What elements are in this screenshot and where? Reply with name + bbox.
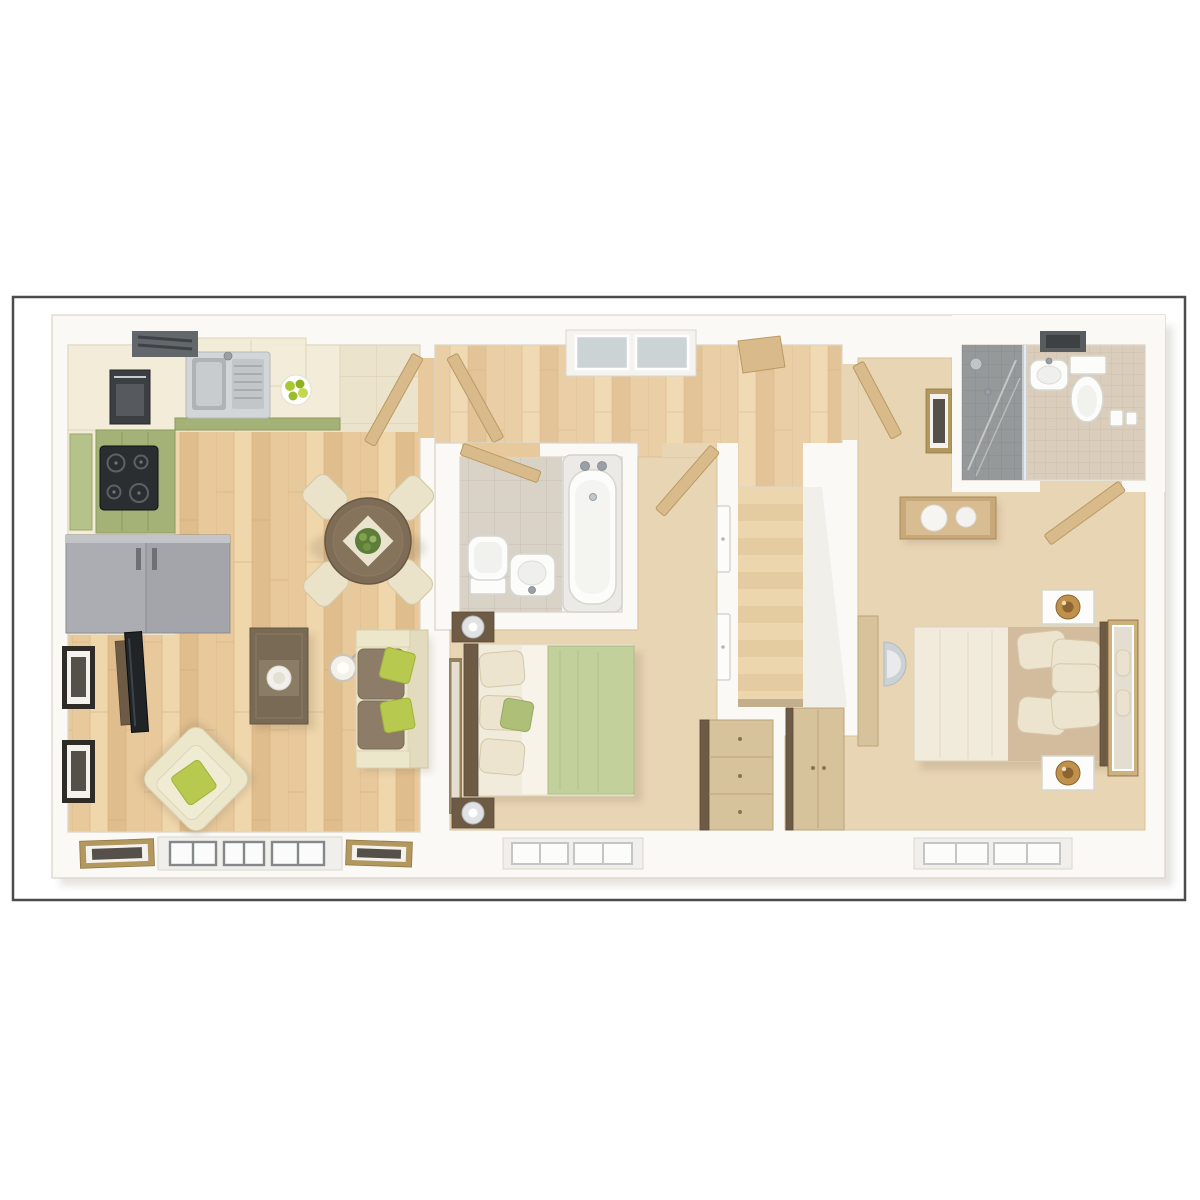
wall-picture bbox=[62, 740, 95, 803]
chest-of-drawers bbox=[700, 720, 773, 830]
coffee-table bbox=[250, 628, 315, 730]
built-in-oven bbox=[110, 370, 150, 424]
extractor-vent bbox=[1040, 331, 1086, 352]
bedside-table bbox=[452, 798, 494, 828]
leaning-mirror bbox=[1108, 620, 1138, 776]
shower-head bbox=[970, 358, 982, 370]
room-bathroom bbox=[435, 443, 638, 630]
desk bbox=[858, 616, 878, 746]
fruit-bowl bbox=[281, 375, 311, 405]
hob bbox=[100, 446, 158, 510]
bay-window bbox=[158, 837, 342, 870]
shower-enclosure bbox=[962, 345, 1028, 480]
wall-picture bbox=[62, 646, 95, 709]
loft-hatch bbox=[738, 336, 785, 373]
console-table bbox=[900, 497, 1000, 544]
ensuite-basin bbox=[1030, 358, 1068, 390]
bedside-table bbox=[452, 612, 494, 642]
double-bed-green bbox=[464, 644, 642, 802]
leaning-picture-frame bbox=[80, 839, 155, 869]
wall-picture bbox=[926, 389, 952, 453]
basin bbox=[510, 554, 555, 596]
ensuite-toilet bbox=[1070, 356, 1106, 422]
skylight-window bbox=[566, 330, 696, 376]
wardrobe bbox=[786, 708, 844, 830]
sofa bbox=[356, 630, 432, 772]
toilet-roll-holders bbox=[1110, 410, 1137, 426]
bedside-table bbox=[1042, 590, 1094, 624]
page bbox=[0, 0, 1200, 1200]
window-panes bbox=[170, 842, 324, 865]
room-kitchen-living-dining bbox=[62, 331, 437, 870]
wall-mirror bbox=[449, 658, 462, 814]
leaning-picture-frame bbox=[346, 840, 413, 867]
kitchen-sink bbox=[186, 352, 270, 418]
bedside-table bbox=[1042, 756, 1094, 790]
bedroom1-window bbox=[914, 838, 1072, 869]
double-bed-master bbox=[914, 622, 1112, 770]
fridge-freezer bbox=[66, 535, 230, 633]
bedroom2-window bbox=[503, 838, 643, 869]
floor-plan bbox=[0, 0, 1200, 1200]
extractor-hood bbox=[132, 331, 198, 357]
bath bbox=[563, 455, 622, 612]
toilet bbox=[468, 536, 508, 594]
